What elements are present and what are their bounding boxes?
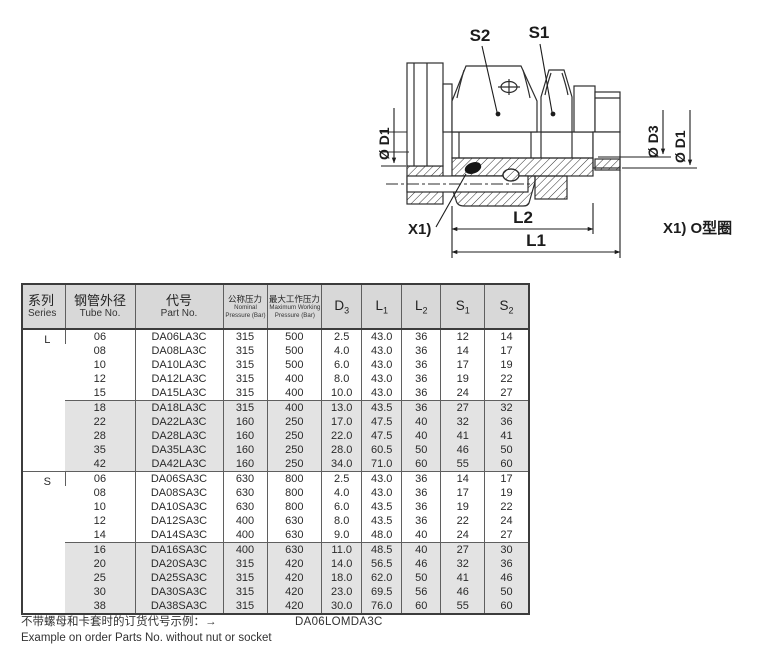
table-row: 08DA08LA3C3155004.043.0361417 [22,344,529,358]
table-row: 20DA20SA3C31542014.056.5463236 [22,557,529,571]
table-cell: 23.0 [322,585,362,599]
table-cell: 500 [267,329,322,344]
table-cell: DA20SA3C [135,557,223,571]
table-cell: 48.5 [362,543,402,558]
table-cell: 43.0 [362,344,402,358]
label-oring-note: X1) O型圈 [663,219,732,237]
table-cell: 400 [267,401,322,416]
table-cell: 08 [65,486,135,500]
table-cell: 06 [65,329,135,344]
table-cell: 43.0 [362,472,402,487]
col-header-tube: 钢管外径 Tube No. [65,284,135,329]
table-cell: 12 [441,329,485,344]
table-cell: 630 [223,500,267,514]
table-cell: 315 [223,571,267,585]
table-cell: 46 [485,571,529,585]
table-row: 22DA22LA3C16025017.047.5403236 [22,415,529,429]
header-nominal-en2: Pressure (Bar) [225,312,266,320]
table-cell: DA42LA3C [135,457,223,472]
label-dia-d1-right: Ø D1 [672,130,688,163]
table-row: 12DA12LA3C3154008.043.0361922 [22,372,529,386]
table-cell: 400 [223,528,267,543]
label-s1: S1 [529,23,550,42]
table-cell: 420 [267,599,322,614]
order-example-en: Example on order Parts No. without nut o… [21,631,721,646]
table-cell: 22 [65,415,135,429]
table-cell: 24 [485,514,529,528]
order-example-zh: 不带螺母和卡套时的订货代号示例：→ [21,616,217,628]
catalog-page: S2 S1 Ø D1 Ø D3 Ø D1 L2 L1 X1) X1) O型圈 系… [0,0,758,654]
header-max-zh: 最大工作压力 [268,294,322,304]
table-cell: 630 [267,528,322,543]
table-cell: 16 [65,543,135,558]
table-cell: 400 [267,372,322,386]
header-series-zh: 系列 [28,293,65,308]
fitting-outline [381,63,620,206]
table-cell: 11.0 [322,543,362,558]
table-cell: 41 [441,429,485,443]
table-cell: 250 [267,415,322,429]
technical-drawing: S2 S1 Ø D1 Ø D3 Ø D1 L2 L1 X1) X1) O型圈 [0,0,758,272]
label-dia-d1-left: Ø D1 [376,127,392,160]
table-cell: 38 [65,599,135,614]
col-header-part: 代号 Part No. [135,284,223,329]
table-cell: 10.0 [322,386,362,401]
table-cell: 630 [223,472,267,487]
table-cell: 420 [267,557,322,571]
series-cell: S [22,472,65,615]
table-cell: 315 [223,358,267,372]
table-cell: 17 [485,472,529,487]
table-cell: 25 [65,571,135,585]
header-row: 系列 Series 钢管外径 Tube No. 代号 Part No. 公称压力… [22,284,529,329]
flange-body [407,63,443,166]
table-cell: DA18LA3C [135,401,223,416]
table-cell: 12 [65,514,135,528]
table-row: 28DA28LA3C16025022.047.5404141 [22,429,529,443]
table-cell: 14 [441,344,485,358]
table-row: 38DA38SA3C31542030.076.0605560 [22,599,529,614]
table-row: 25DA25SA3C31542018.062.0504146 [22,571,529,585]
table-cell: 27 [441,401,485,416]
table-cell: 41 [485,429,529,443]
series-cell: L [22,329,65,472]
table-cell: 60.5 [362,443,402,457]
table-cell: 400 [223,543,267,558]
table-cell: DA15LA3C [135,386,223,401]
table-cell: DA10SA3C [135,500,223,514]
table-cell: 43.5 [362,401,402,416]
table-cell: 2.5 [322,329,362,344]
table-cell: 800 [267,500,322,514]
table-cell: 47.5 [362,429,402,443]
table-cell: 50 [485,443,529,457]
table-cell: 36 [402,514,441,528]
table-cell: 2.5 [322,472,362,487]
table-cell: 315 [223,401,267,416]
table-cell: 500 [267,358,322,372]
header-tube-en: Tube No. [66,308,135,320]
col-header-max-pressure: 最大工作压力 Maximum Working Pressure (Bar) [267,284,322,329]
table-cell: 46 [441,585,485,599]
table-row: 08DA08SA3C6308004.043.0361719 [22,486,529,500]
table-cell: 8.0 [322,372,362,386]
table-cell: 250 [267,443,322,457]
table-body: L06DA06LA3C3155002.543.036121408DA08LA3C… [22,329,529,614]
table-cell: 60 [402,599,441,614]
col-header-l1: L1 [362,284,402,329]
table-cell: 630 [223,486,267,500]
header-series-en: Series [28,308,65,320]
table-cell: 500 [267,344,322,358]
header-nominal-en1: Nominal [225,304,266,312]
table-cell: 14 [441,472,485,487]
table-cell: 160 [223,429,267,443]
table-cell: 24 [441,386,485,401]
spec-table: 系列 Series 钢管外径 Tube No. 代号 Part No. 公称压力… [21,283,530,615]
table-cell: 40 [402,543,441,558]
table-cell: 19 [485,358,529,372]
table-cell: 420 [267,585,322,599]
table-cell: DA22LA3C [135,415,223,429]
table-cell: 40 [402,415,441,429]
table-cell: 48.0 [362,528,402,543]
table-cell: 800 [267,486,322,500]
table-row: 16DA16SA3C40063011.048.5402730 [22,543,529,558]
label-l1: L1 [526,231,546,250]
label-dia-d3: Ø D3 [645,125,661,158]
table-cell: DA35LA3C [135,443,223,457]
table-row: 15DA15LA3C31540010.043.0362427 [22,386,529,401]
header-max-en2: Pressure (Bar) [269,312,320,320]
footer-note: 不带螺母和卡套时的订货代号示例：→ DA06LOMDA3C Example on… [21,615,721,646]
table-cell: 420 [267,571,322,585]
table-cell: 10 [65,500,135,514]
table-cell: 30 [65,585,135,599]
table-cell: 43.0 [362,358,402,372]
table-cell: 30 [485,543,529,558]
table-cell: 46 [441,443,485,457]
table-cell: 43.0 [362,486,402,500]
table-cell: 56 [402,585,441,599]
header-tube-zh: 钢管外径 [66,293,135,308]
table-cell: 36 [485,557,529,571]
table-cell: 36 [485,415,529,429]
table-cell: 50 [402,571,441,585]
table-cell: DA28LA3C [135,429,223,443]
table-cell: 60 [402,457,441,472]
table-cell: DA06SA3C [135,472,223,487]
table-cell: 28.0 [322,443,362,457]
table-cell: 47.5 [362,415,402,429]
table-cell: 43.5 [362,514,402,528]
table-cell: 15 [65,386,135,401]
table-row: 30DA30SA3C31542023.069.5564650 [22,585,529,599]
table-cell: 250 [267,429,322,443]
table-row: 42DA42LA3C16025034.071.0605560 [22,457,529,472]
table-cell: DA06LA3C [135,329,223,344]
table-cell: 14 [65,528,135,543]
table-cell: 46 [402,557,441,571]
col-header-s2: S2 [485,284,529,329]
table-cell: 13.0 [322,401,362,416]
table-cell: 4.0 [322,486,362,500]
table-cell: 14.0 [322,557,362,571]
table-cell: 27 [441,543,485,558]
table-cell: 32 [485,401,529,416]
table-cell: 35 [65,443,135,457]
table-cell: 315 [223,557,267,571]
table-cell: 76.0 [362,599,402,614]
table-cell: 36 [402,486,441,500]
table-row: 10DA10LA3C3155006.043.0361719 [22,358,529,372]
col-header-l2: L2 [402,284,441,329]
table-cell: 630 [267,514,322,528]
table-cell: 315 [223,599,267,614]
table-row: 12DA12SA3C4006308.043.5362224 [22,514,529,528]
col-header-s1: S1 [441,284,485,329]
col-header-series: 系列 Series [22,284,65,329]
table-cell: 36 [402,329,441,344]
table-cell: 36 [402,358,441,372]
table-cell: 71.0 [362,457,402,472]
table-cell: 400 [267,386,322,401]
table-cell: 43.5 [362,500,402,514]
table-cell: 22 [485,500,529,514]
table-cell: 27 [485,528,529,543]
table-cell: DA12SA3C [135,514,223,528]
table-cell: 69.5 [362,585,402,599]
table-cell: 55 [441,457,485,472]
table-cell: 400 [223,514,267,528]
table-cell: 43.0 [362,372,402,386]
table-cell: 17 [441,486,485,500]
table-cell: 36 [402,472,441,487]
table-cell: DA08SA3C [135,486,223,500]
table-row: L06DA06LA3C3155002.543.0361214 [22,329,529,344]
table-cell: 06 [65,472,135,487]
table-cell: 41 [441,571,485,585]
table-cell: 36 [402,500,441,514]
table-cell: 55 [441,599,485,614]
table-cell: DA08LA3C [135,344,223,358]
order-example-code: DA06LOMDA3C [295,615,383,630]
table-cell: 17 [485,344,529,358]
table-cell: 22.0 [322,429,362,443]
header-nominal-zh: 公称压力 [224,294,267,304]
table-cell: DA12LA3C [135,372,223,386]
table-cell: DA10LA3C [135,358,223,372]
table-cell: 36 [402,372,441,386]
table-row: 10DA10SA3C6308006.043.5361922 [22,500,529,514]
table-row: 14DA14SA3C4006309.048.0402427 [22,528,529,543]
col-header-d3: D3 [322,284,362,329]
label-x1: X1) [408,221,431,238]
table-cell: 12 [65,372,135,386]
table-cell: DA16SA3C [135,543,223,558]
label-l2: L2 [513,208,533,227]
table-cell: 6.0 [322,500,362,514]
table-cell: 34.0 [322,457,362,472]
table-cell: 18 [65,401,135,416]
table-cell: 50 [402,443,441,457]
table-cell: 36 [402,344,441,358]
table-cell: 4.0 [322,344,362,358]
table-cell: 32 [441,557,485,571]
table-cell: 32 [441,415,485,429]
table-cell: 22 [441,514,485,528]
table-cell: 17 [441,358,485,372]
table-row: 35DA35LA3C16025028.060.5504650 [22,443,529,457]
table-cell: 6.0 [322,358,362,372]
table-cell: 8.0 [322,514,362,528]
table-row: 18DA18LA3C31540013.043.5362732 [22,401,529,416]
table-cell: 19 [485,486,529,500]
header-max-en1: Maximum Working [269,304,320,312]
table-cell: 18.0 [322,571,362,585]
table-row: S06DA06SA3C6308002.543.0361417 [22,472,529,487]
table-cell: 43.0 [362,329,402,344]
table-cell: DA30SA3C [135,585,223,599]
table-cell: 22 [485,372,529,386]
label-s2: S2 [470,26,491,45]
table-cell: 30.0 [322,599,362,614]
table-cell: 9.0 [322,528,362,543]
table-cell: 19 [441,500,485,514]
table-cell: DA14SA3C [135,528,223,543]
table-cell: DA25SA3C [135,571,223,585]
table-cell: 36 [402,386,441,401]
table-cell: 50 [485,585,529,599]
table-cell: 28 [65,429,135,443]
table-cell: 315 [223,386,267,401]
table-cell: 24 [441,528,485,543]
table-cell: 62.0 [362,571,402,585]
table-cell: 40 [402,528,441,543]
table-cell: 42 [65,457,135,472]
table-cell: 27 [485,386,529,401]
table-cell: 315 [223,585,267,599]
table-cell: 14 [485,329,529,344]
table-cell: 36 [402,401,441,416]
table-cell: 40 [402,429,441,443]
table-cell: 20 [65,557,135,571]
body-hex-s1 [541,70,572,132]
header-part-en: Part No. [136,308,223,320]
table-cell: 43.0 [362,386,402,401]
table-cell: 160 [223,415,267,429]
table-cell: 10 [65,358,135,372]
table-cell: 630 [267,543,322,558]
table-cell: 315 [223,344,267,358]
table-cell: 250 [267,457,322,472]
table-cell: 315 [223,329,267,344]
col-header-nominal-pressure: 公称压力 Nominal Pressure (Bar) [223,284,267,329]
table-cell: DA38SA3C [135,599,223,614]
table-cell: 60 [485,457,529,472]
table-cell: 17.0 [322,415,362,429]
table-cell: 160 [223,457,267,472]
table-cell: 315 [223,372,267,386]
table-cell: 56.5 [362,557,402,571]
table-cell: 19 [441,372,485,386]
table-cell: 08 [65,344,135,358]
table-cell: 800 [267,472,322,487]
header-part-zh: 代号 [136,293,223,308]
table-cell: 160 [223,443,267,457]
table-cell: 60 [485,599,529,614]
